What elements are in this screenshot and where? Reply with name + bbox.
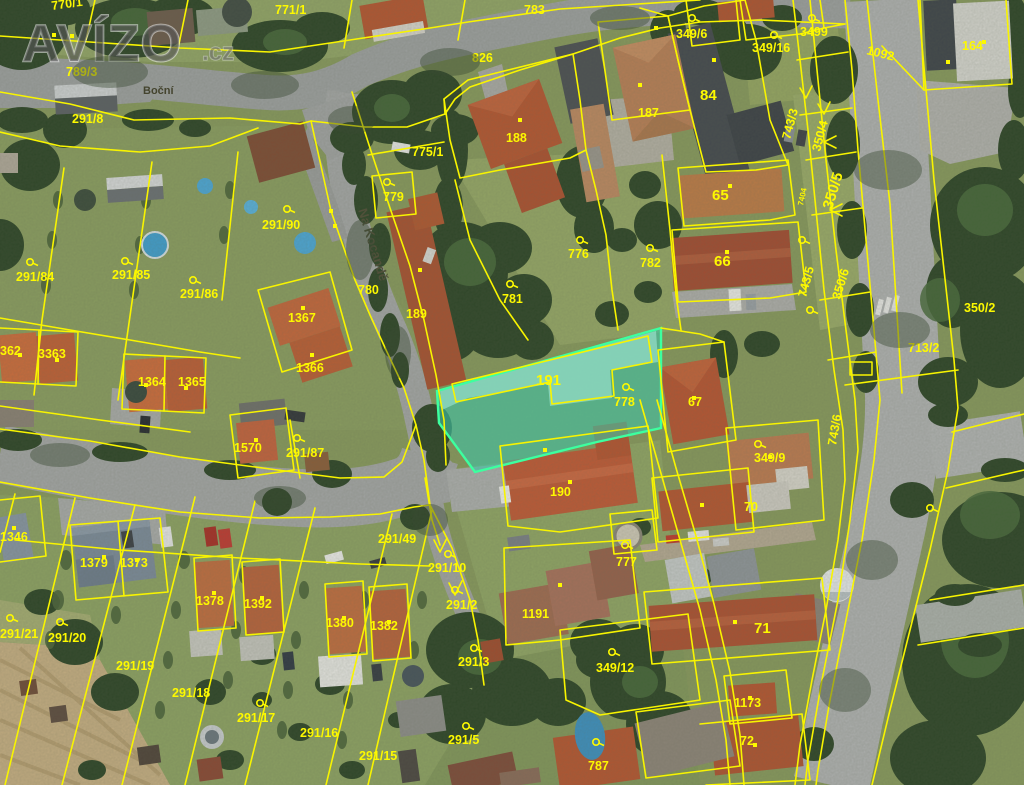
svg-text:291/84: 291/84 — [16, 270, 54, 284]
svg-text:1346: 1346 — [0, 530, 28, 544]
svg-text:1570: 1570 — [234, 441, 262, 455]
svg-text:349/12: 349/12 — [596, 661, 634, 675]
svg-text:291/86: 291/86 — [180, 287, 218, 301]
svg-text:1392: 1392 — [244, 597, 272, 611]
svg-text:1365: 1365 — [178, 375, 206, 389]
svg-text:780: 780 — [358, 283, 379, 297]
svg-text:291/17: 291/17 — [237, 711, 275, 725]
svg-text:3499: 3499 — [800, 25, 828, 39]
svg-text:291/85: 291/85 — [112, 268, 150, 282]
svg-text:1379: 1379 — [80, 556, 108, 570]
svg-text:349/6: 349/6 — [676, 27, 707, 41]
svg-text:1367: 1367 — [288, 311, 316, 325]
svg-text:1378: 1378 — [196, 594, 224, 608]
svg-text:65: 65 — [712, 187, 729, 204]
svg-text:1380: 1380 — [326, 616, 354, 630]
svg-text:1364: 1364 — [138, 375, 166, 389]
svg-text:777: 777 — [616, 555, 637, 569]
svg-text:Boční: Boční — [143, 85, 175, 97]
svg-text:67: 67 — [688, 395, 702, 409]
svg-text:191: 191 — [536, 372, 561, 389]
svg-text:291/8: 291/8 — [72, 112, 103, 126]
svg-text:190: 190 — [550, 485, 571, 499]
svg-text:349/16: 349/16 — [752, 41, 790, 55]
svg-text:291/10: 291/10 — [428, 561, 466, 575]
svg-text:291/5: 291/5 — [448, 733, 479, 747]
svg-text:291/2: 291/2 — [446, 598, 477, 612]
svg-text:70: 70 — [744, 500, 758, 514]
svg-text:362: 362 — [0, 344, 21, 358]
svg-text:782: 782 — [640, 256, 661, 270]
svg-text:1382: 1382 — [370, 619, 398, 633]
svg-text:349/9: 349/9 — [754, 451, 785, 465]
svg-text:72: 72 — [740, 734, 754, 748]
svg-text:.cz: .cz — [202, 39, 234, 66]
svg-text:350/2: 350/2 — [964, 301, 995, 315]
svg-text:775/1: 775/1 — [412, 145, 443, 159]
svg-text:291/19: 291/19 — [116, 659, 154, 673]
svg-text:1366: 1366 — [296, 361, 324, 375]
svg-text:779: 779 — [383, 190, 404, 204]
svg-text:164: 164 — [962, 39, 983, 53]
svg-text:778: 778 — [614, 395, 635, 409]
svg-text:187: 187 — [638, 106, 659, 120]
svg-text:291/87: 291/87 — [286, 446, 324, 460]
svg-text:291/15: 291/15 — [359, 749, 397, 763]
svg-text:3363: 3363 — [38, 347, 66, 361]
svg-text:71: 71 — [754, 620, 771, 637]
svg-text:776: 776 — [568, 247, 589, 261]
svg-text:84: 84 — [700, 87, 717, 104]
svg-text:783: 783 — [524, 3, 545, 17]
svg-text:291/18: 291/18 — [172, 686, 210, 700]
svg-text:291/49: 291/49 — [378, 532, 416, 546]
svg-text:291/16: 291/16 — [300, 726, 338, 740]
svg-text:771/1: 771/1 — [275, 3, 306, 17]
svg-text:787: 787 — [588, 759, 609, 773]
svg-text:291/21: 291/21 — [0, 627, 38, 641]
svg-text:188: 188 — [506, 131, 527, 145]
svg-text:1373: 1373 — [120, 556, 148, 570]
svg-text:291/90: 291/90 — [262, 218, 300, 232]
svg-text:189: 189 — [406, 307, 427, 321]
svg-text:291/3: 291/3 — [458, 655, 489, 669]
svg-text:66: 66 — [714, 253, 731, 270]
svg-text:1173: 1173 — [734, 696, 761, 710]
svg-text:1191: 1191 — [522, 607, 549, 621]
svg-text:781: 781 — [502, 292, 523, 306]
svg-text:291/20: 291/20 — [48, 631, 86, 645]
